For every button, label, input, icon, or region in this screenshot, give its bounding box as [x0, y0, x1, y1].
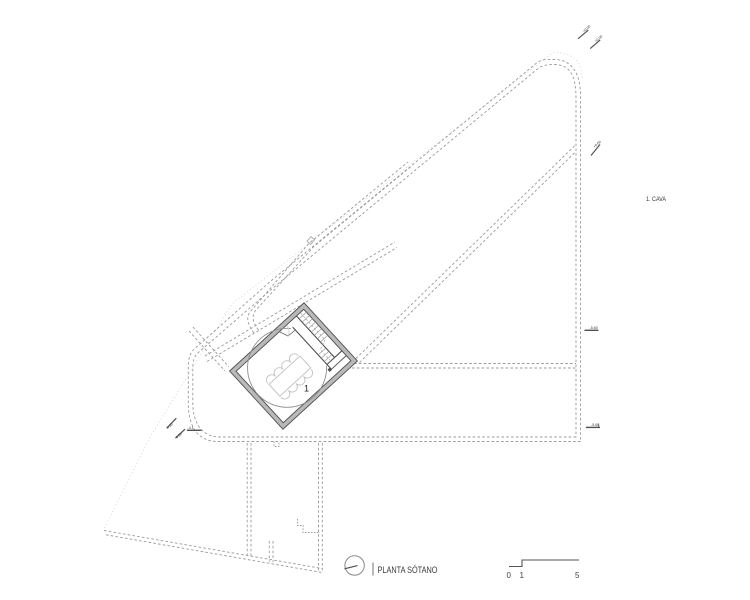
svg-text:1: 1: [520, 571, 525, 580]
svg-text:-4.1: -4.1: [188, 426, 194, 430]
svg-text:0: 0: [507, 571, 512, 580]
svg-text:-5.60: -5.60: [590, 326, 598, 330]
svg-text:PLANTA SÓTANO: PLANTA SÓTANO: [378, 565, 438, 576]
svg-text:1. CAVA: 1. CAVA: [646, 196, 667, 203]
svg-text:5: 5: [575, 571, 580, 580]
svg-text:1: 1: [304, 384, 309, 394]
svg-text:-5.60: -5.60: [591, 423, 599, 427]
